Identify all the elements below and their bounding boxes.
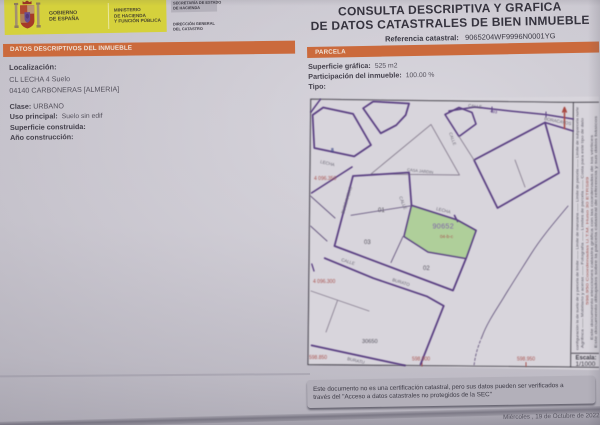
svg-text:598.900: 598.900 (412, 357, 430, 363)
svg-text:598.950: 598.950 (517, 357, 535, 363)
svg-text:Agrifinca —— Mobiliario y ace: Agrifinca —— Mobiliario y aceras —— Foto… (581, 118, 585, 348)
svg-text:90652: 90652 (433, 222, 455, 231)
svg-text:01: 01 (378, 208, 385, 214)
svg-text:493: 493 (490, 109, 498, 115)
svg-text:03: 03 (364, 240, 371, 246)
svg-text:02: 02 (423, 266, 430, 272)
svg-text:598.850: 598.850 (309, 355, 327, 361)
svg-text:configuración la de suelo de y: configuración la de suelo de y parcela d… (576, 107, 580, 350)
svg-text:30650: 30650 (362, 339, 378, 345)
svg-text:4 096.300: 4 096.300 (313, 279, 335, 285)
svg-text:4 096.350: 4 096.350 (314, 176, 336, 182)
svg-text:04-b-c: 04-b-c (440, 234, 454, 239)
svg-text:8: 8 (331, 148, 334, 154)
